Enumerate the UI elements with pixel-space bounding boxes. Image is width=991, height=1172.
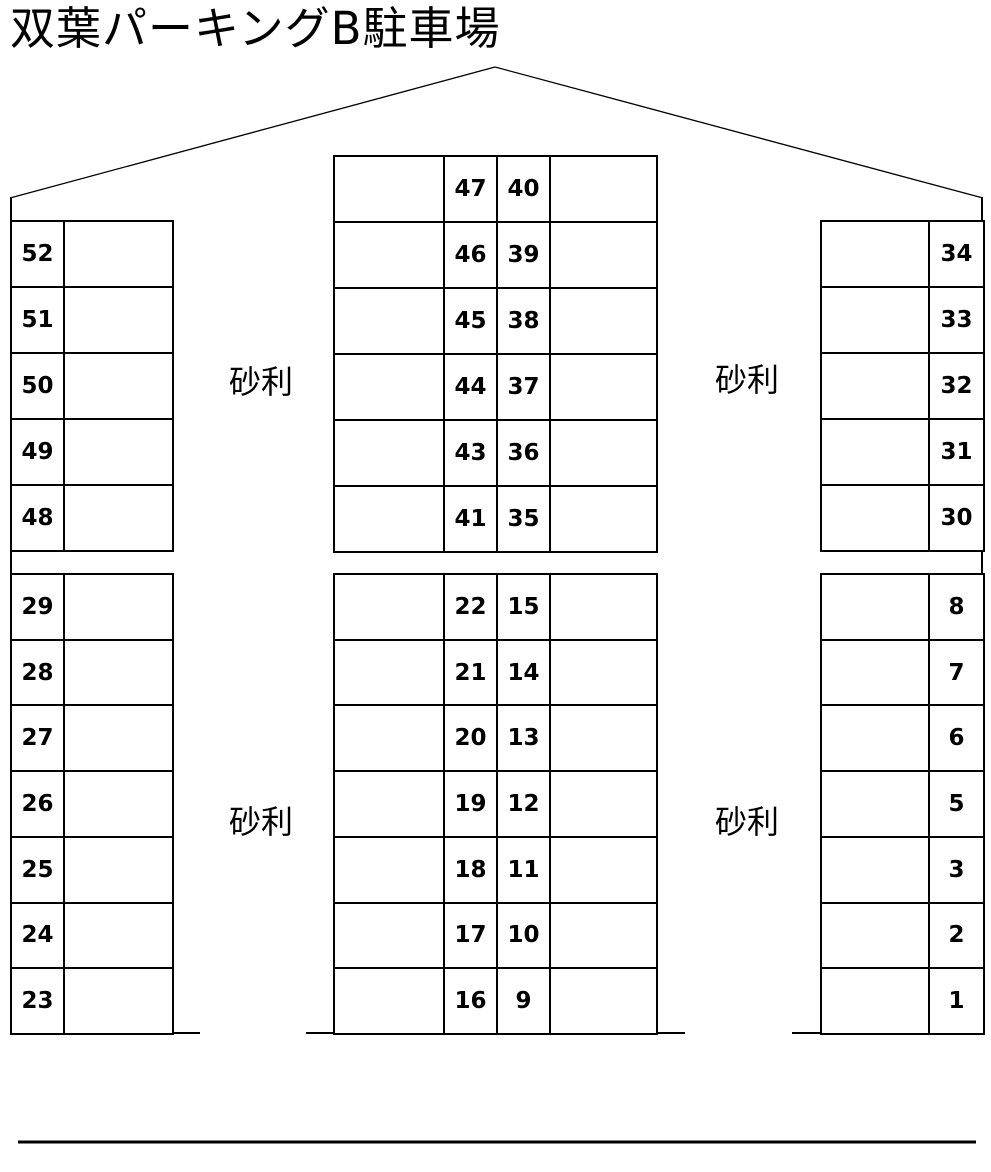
space-number-cell: 3 bbox=[929, 837, 984, 903]
parking-space-cell bbox=[334, 968, 444, 1034]
parking-space-cell bbox=[334, 222, 444, 288]
space-number-cell: 7 bbox=[929, 640, 984, 706]
parking-space-cell bbox=[64, 837, 173, 903]
parking-space-cell bbox=[64, 968, 173, 1034]
parking-row: 169 bbox=[334, 968, 657, 1034]
space-number-cell: 5 bbox=[929, 771, 984, 837]
parking-space-cell bbox=[550, 771, 657, 837]
parking-space-cell bbox=[821, 968, 929, 1034]
parking-space-cell bbox=[550, 288, 657, 354]
parking-space-cell bbox=[334, 420, 444, 486]
space-number-cell: 1 bbox=[929, 968, 984, 1034]
parking-row: 1710 bbox=[334, 903, 657, 969]
space-number-cell: 41 bbox=[444, 486, 497, 552]
parking-row: 31 bbox=[821, 419, 984, 485]
parking-space-cell bbox=[550, 156, 657, 222]
parking-space-cell bbox=[550, 837, 657, 903]
parking-space-cell bbox=[550, 903, 657, 969]
parking-space-cell bbox=[64, 419, 173, 485]
space-number-cell: 22 bbox=[444, 574, 497, 640]
parking-space-cell bbox=[64, 485, 173, 551]
space-number-cell: 18 bbox=[444, 837, 497, 903]
space-number-cell: 51 bbox=[11, 287, 64, 353]
space-number-cell: 50 bbox=[11, 353, 64, 419]
parking-map-page: 双葉パーキングB駐車場 5251504948 29282726252423 47… bbox=[0, 0, 991, 1172]
space-number-cell: 43 bbox=[444, 420, 497, 486]
space-number-cell: 23 bbox=[11, 968, 64, 1034]
parking-row: 4538 bbox=[334, 288, 657, 354]
parking-row: 2 bbox=[821, 903, 984, 969]
parking-space-cell bbox=[550, 420, 657, 486]
space-number-cell: 2 bbox=[929, 903, 984, 969]
parking-row: 33 bbox=[821, 287, 984, 353]
parking-space-cell bbox=[821, 705, 929, 771]
parking-block-left-top: 5251504948 bbox=[10, 220, 174, 552]
parking-space-cell bbox=[821, 903, 929, 969]
gravel-area-label-top-right: 砂利 bbox=[715, 355, 779, 401]
parking-row: 1 bbox=[821, 968, 984, 1034]
parking-space-cell bbox=[64, 640, 173, 706]
parking-row: 1912 bbox=[334, 771, 657, 837]
parking-space-cell bbox=[334, 288, 444, 354]
parking-row: 30 bbox=[821, 485, 984, 551]
space-number-cell: 27 bbox=[11, 705, 64, 771]
parking-space-cell bbox=[64, 353, 173, 419]
parking-space-cell bbox=[550, 574, 657, 640]
parking-space-cell bbox=[64, 287, 173, 353]
space-number-cell: 35 bbox=[497, 486, 550, 552]
parking-row: 1811 bbox=[334, 837, 657, 903]
parking-row: 27 bbox=[11, 705, 173, 771]
space-number-cell: 28 bbox=[11, 640, 64, 706]
space-number-cell: 20 bbox=[444, 705, 497, 771]
parking-space-cell bbox=[821, 485, 929, 551]
parking-space-cell bbox=[550, 222, 657, 288]
space-number-cell: 19 bbox=[444, 771, 497, 837]
space-number-cell: 21 bbox=[444, 640, 497, 706]
parking-space-cell bbox=[64, 771, 173, 837]
parking-block-left-bottom: 29282726252423 bbox=[10, 573, 174, 1035]
parking-row: 4639 bbox=[334, 222, 657, 288]
parking-row: 3 bbox=[821, 837, 984, 903]
space-number-cell: 40 bbox=[497, 156, 550, 222]
page-title: 双葉パーキングB駐車場 bbox=[10, 0, 501, 58]
parking-space-cell bbox=[821, 287, 929, 353]
space-number-cell: 9 bbox=[497, 968, 550, 1034]
parking-space-cell bbox=[334, 354, 444, 420]
space-number-cell: 11 bbox=[497, 837, 550, 903]
space-number-cell: 39 bbox=[497, 222, 550, 288]
parking-row: 24 bbox=[11, 903, 173, 969]
parking-row: 52 bbox=[11, 221, 173, 287]
parking-block-right-top: 3433323130 bbox=[820, 220, 985, 552]
space-number-cell: 45 bbox=[444, 288, 497, 354]
parking-row: 25 bbox=[11, 837, 173, 903]
parking-row: 6 bbox=[821, 705, 984, 771]
parking-space-cell bbox=[334, 705, 444, 771]
parking-row: 4437 bbox=[334, 354, 657, 420]
space-number-cell: 38 bbox=[497, 288, 550, 354]
parking-row: 51 bbox=[11, 287, 173, 353]
parking-space-cell bbox=[550, 968, 657, 1034]
space-number-cell: 26 bbox=[11, 771, 64, 837]
parking-row: 4336 bbox=[334, 420, 657, 486]
parking-row: 8 bbox=[821, 574, 984, 640]
parking-space-cell bbox=[334, 640, 444, 706]
space-number-cell: 25 bbox=[11, 837, 64, 903]
parking-row: 34 bbox=[821, 221, 984, 287]
parking-row: 4135 bbox=[334, 486, 657, 552]
space-number-cell: 46 bbox=[444, 222, 497, 288]
space-number-cell: 47 bbox=[444, 156, 497, 222]
parking-row: 23 bbox=[11, 968, 173, 1034]
parking-space-cell bbox=[64, 705, 173, 771]
parking-space-cell bbox=[821, 574, 929, 640]
space-number-cell: 44 bbox=[444, 354, 497, 420]
space-number-cell: 14 bbox=[497, 640, 550, 706]
parking-row: 4740 bbox=[334, 156, 657, 222]
parking-space-cell bbox=[550, 486, 657, 552]
parking-row: 5 bbox=[821, 771, 984, 837]
parking-row: 49 bbox=[11, 419, 173, 485]
parking-block-center-top: 474046394538443743364135 bbox=[333, 155, 658, 553]
space-number-cell: 12 bbox=[497, 771, 550, 837]
parking-space-cell bbox=[550, 640, 657, 706]
parking-space-cell bbox=[334, 837, 444, 903]
parking-space-cell bbox=[821, 837, 929, 903]
parking-row: 2114 bbox=[334, 640, 657, 706]
gravel-area-label-bottom-right: 砂利 bbox=[715, 797, 779, 843]
parking-row: 29 bbox=[11, 574, 173, 640]
parking-space-cell bbox=[821, 221, 929, 287]
space-number-cell: 13 bbox=[497, 705, 550, 771]
parking-space-cell bbox=[334, 574, 444, 640]
space-number-cell: 24 bbox=[11, 903, 64, 969]
parking-row: 7 bbox=[821, 640, 984, 706]
parking-space-cell bbox=[64, 903, 173, 969]
parking-row: 32 bbox=[821, 353, 984, 419]
parking-space-cell bbox=[334, 903, 444, 969]
space-number-cell: 10 bbox=[497, 903, 550, 969]
gravel-area-label-top-left: 砂利 bbox=[229, 357, 293, 403]
space-number-cell: 30 bbox=[929, 485, 984, 551]
parking-block-center-bottom: 221521142013191218111710169 bbox=[333, 573, 658, 1035]
parking-space-cell bbox=[821, 353, 929, 419]
parking-block-right-bottom: 8765321 bbox=[820, 573, 985, 1035]
space-number-cell: 6 bbox=[929, 705, 984, 771]
parking-space-cell bbox=[821, 640, 929, 706]
space-number-cell: 52 bbox=[11, 221, 64, 287]
parking-row: 28 bbox=[11, 640, 173, 706]
parking-row: 26 bbox=[11, 771, 173, 837]
parking-space-cell bbox=[64, 221, 173, 287]
gravel-area-label-bottom-left: 砂利 bbox=[229, 797, 293, 843]
space-number-cell: 8 bbox=[929, 574, 984, 640]
space-number-cell: 48 bbox=[11, 485, 64, 551]
space-number-cell: 36 bbox=[497, 420, 550, 486]
space-number-cell: 37 bbox=[497, 354, 550, 420]
space-number-cell: 33 bbox=[929, 287, 984, 353]
parking-space-cell bbox=[334, 156, 444, 222]
parking-space-cell bbox=[334, 771, 444, 837]
parking-row: 2215 bbox=[334, 574, 657, 640]
space-number-cell: 29 bbox=[11, 574, 64, 640]
parking-space-cell bbox=[550, 354, 657, 420]
parking-space-cell bbox=[550, 705, 657, 771]
space-number-cell: 17 bbox=[444, 903, 497, 969]
parking-row: 2013 bbox=[334, 705, 657, 771]
parking-row: 50 bbox=[11, 353, 173, 419]
parking-space-cell bbox=[821, 419, 929, 485]
parking-row: 48 bbox=[11, 485, 173, 551]
space-number-cell: 34 bbox=[929, 221, 984, 287]
space-number-cell: 16 bbox=[444, 968, 497, 1034]
space-number-cell: 31 bbox=[929, 419, 984, 485]
parking-space-cell bbox=[334, 486, 444, 552]
space-number-cell: 49 bbox=[11, 419, 64, 485]
parking-space-cell bbox=[821, 771, 929, 837]
space-number-cell: 15 bbox=[497, 574, 550, 640]
space-number-cell: 32 bbox=[929, 353, 984, 419]
parking-space-cell bbox=[64, 574, 173, 640]
